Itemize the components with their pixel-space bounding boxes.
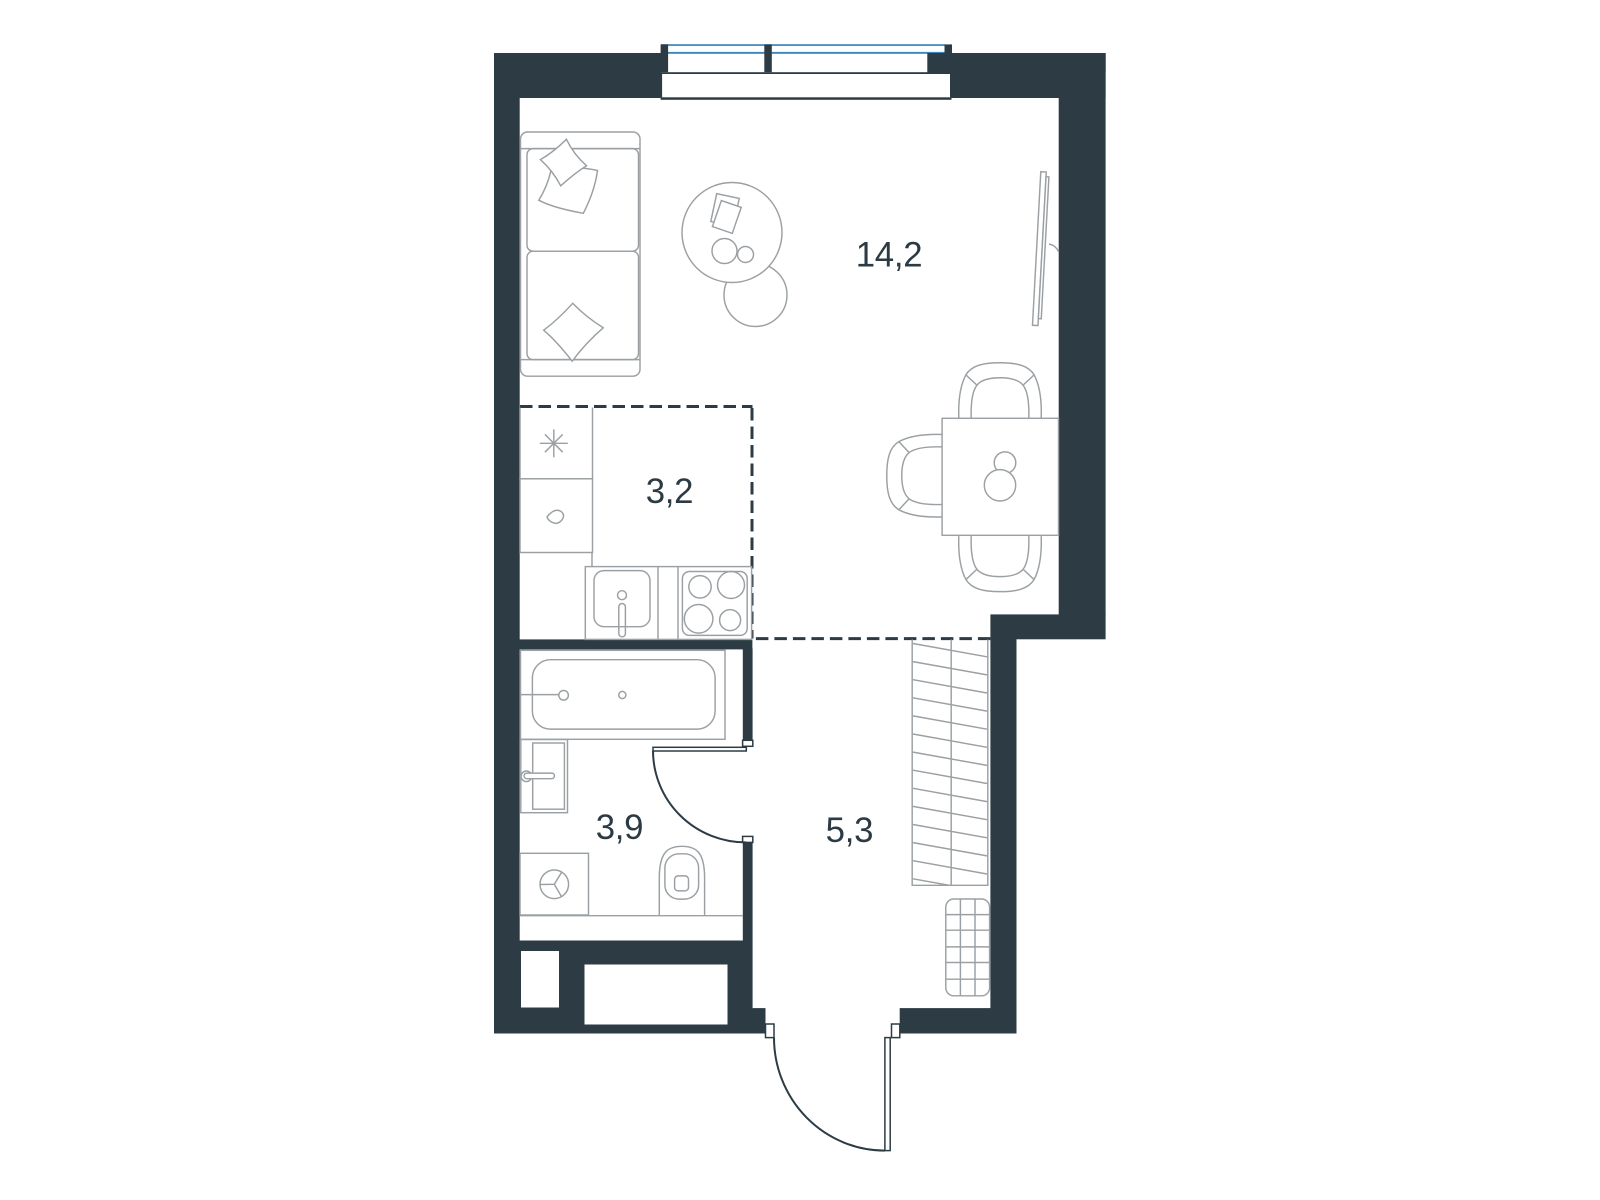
svg-text:3,9: 3,9 — [596, 808, 643, 847]
svg-text:14,2: 14,2 — [856, 236, 923, 275]
svg-text:5,3: 5,3 — [826, 811, 873, 850]
svg-text:3,2: 3,2 — [646, 472, 693, 511]
